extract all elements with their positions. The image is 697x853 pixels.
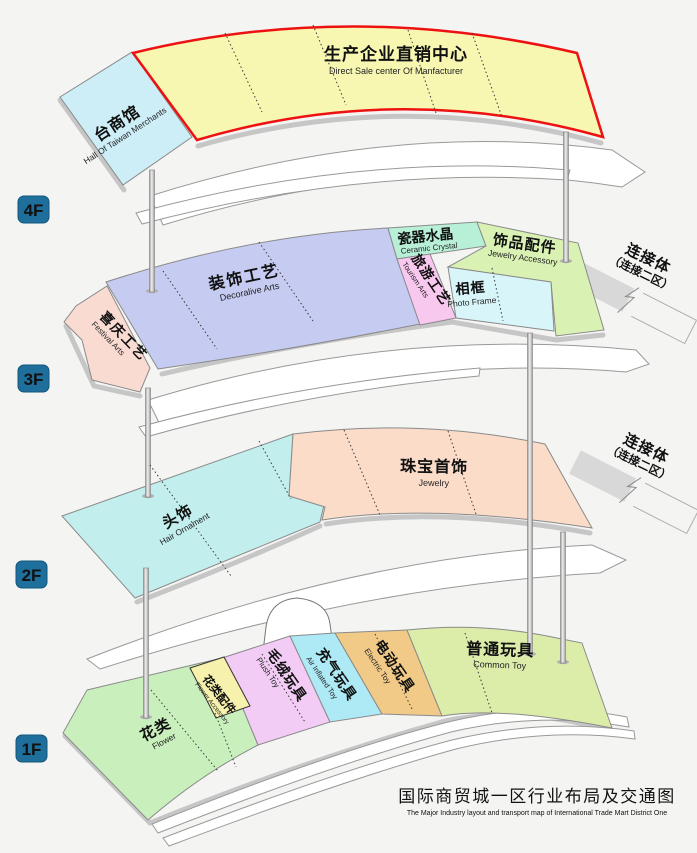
trade-mart-floor-map: 台商馆 Hall Of Taiwan Merchants 生产企业直销中心 Di… bbox=[0, 0, 697, 853]
label-en: Direct Sale center Of Manfacturer bbox=[329, 66, 463, 76]
label-common-toy: 普通玩具 Common Toy bbox=[465, 639, 534, 671]
badge-label: 1F bbox=[22, 740, 42, 759]
label-en: Common Toy bbox=[473, 659, 527, 671]
column-4f-left bbox=[150, 170, 155, 292]
column-4f-right bbox=[564, 132, 569, 262]
label-zh: 生产企业直销中心 bbox=[324, 44, 468, 64]
label-en: Jewelry bbox=[418, 478, 449, 489]
column-2f-right bbox=[561, 532, 566, 663]
label-zh: 普通玩具 bbox=[466, 639, 535, 660]
region-manufacturer-direct-sale bbox=[133, 27, 603, 141]
badge-label: 4F bbox=[24, 201, 44, 220]
connector-outline-2f bbox=[633, 483, 697, 533]
map-title: 国际商贸城一区行业布局及交通图 The Major Industry layou… bbox=[398, 787, 676, 817]
badge-label: 3F bbox=[24, 370, 44, 389]
badge-1f: 1F bbox=[16, 735, 47, 762]
column-2f-left bbox=[144, 568, 149, 718]
label-zh: 珠宝首饰 bbox=[400, 456, 468, 476]
label-manufacturer: 生产企业直销中心 Direct Sale center Of Manfactur… bbox=[324, 44, 468, 76]
title-zh: 国际商贸城一区行业布局及交通图 bbox=[398, 787, 676, 806]
badge-label: 2F bbox=[22, 566, 42, 585]
badge-2f: 2F bbox=[16, 561, 47, 588]
badge-3f: 3F bbox=[18, 365, 49, 392]
column-3f-left bbox=[146, 388, 151, 497]
badge-4f: 4F bbox=[18, 196, 49, 223]
band-4f-3f-main bbox=[150, 142, 645, 225]
label-zh: 相框 bbox=[455, 279, 486, 298]
column-3f-right bbox=[528, 333, 533, 655]
title-en: The Major Industry layout and transport … bbox=[407, 810, 667, 817]
connector-outline-3f bbox=[631, 293, 696, 343]
floor-badges: 4F 3F 2F 1F bbox=[16, 196, 49, 762]
